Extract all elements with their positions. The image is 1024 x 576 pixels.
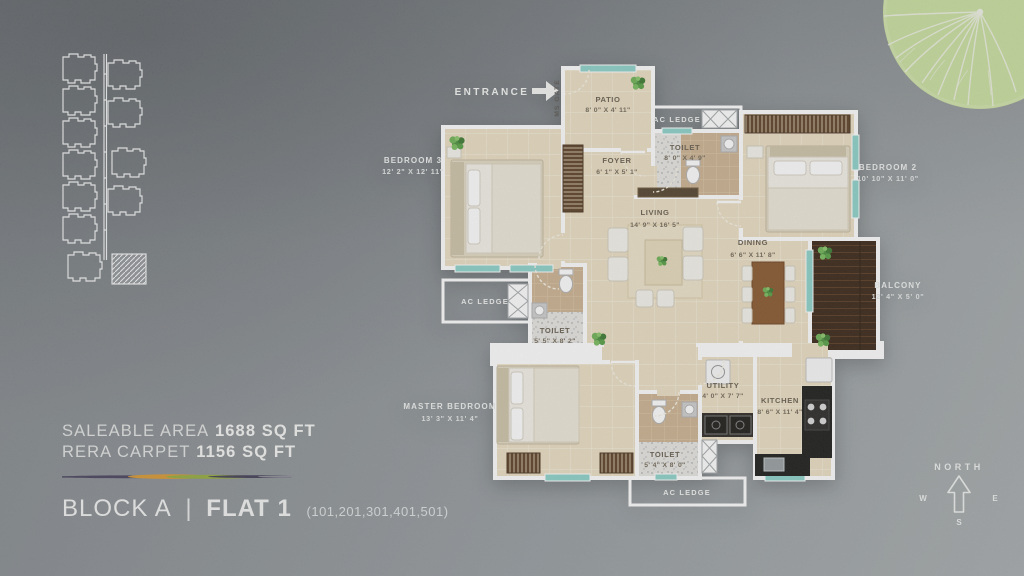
area-summary: SALEABLE AREA 1688 SQ FT RERA CARPET 115… (62, 421, 316, 463)
flat-name: FLAT 1 (206, 495, 292, 522)
dim-foyer: 6' 1" X 5' 1" (596, 169, 637, 176)
dim-patio: 8' 0" X 4' 11" (585, 107, 630, 114)
saleable-area-line: SALEABLE AREA 1688 SQ FT (62, 421, 316, 442)
label-kitchen: KITCHEN (761, 396, 799, 405)
label-ac-ledge-bottom: AC LEDGE (663, 488, 711, 497)
compass-south-label: S (956, 518, 962, 527)
label-toilet-top: TOILET (670, 143, 700, 152)
compass-arrow-icon (948, 476, 970, 512)
label-toilet-mid: TOILET (540, 326, 570, 335)
compass: NORTH W E S (903, 456, 1015, 534)
key-plan (60, 52, 160, 292)
title-separator: | (185, 495, 192, 522)
label-bedroom3: BEDROOM 3 (384, 156, 442, 165)
entrance-label: ENTRANCE (455, 87, 530, 98)
dim-bedroom2: 10' 10" X 11' 0" (857, 174, 919, 183)
label-patio: PATIO (595, 95, 620, 104)
label-toilet-bottom: TOILET (650, 450, 680, 459)
dim-dining: 6' 6" X 11' 8" (730, 252, 775, 259)
floor-plan: PATIO 8' 0" X 4' 11" FOYER 6' 1" X 5' 1"… (340, 50, 1024, 520)
rera-value: 1156 SQ FT (196, 443, 296, 461)
bed-bedroom3 (447, 147, 543, 257)
block-name: BLOCK A (62, 495, 172, 522)
dim-toilet-bottom: 5' 4" X 8' 0" (644, 462, 685, 469)
tv-console (638, 188, 698, 197)
label-living: LIVING (641, 208, 670, 217)
wardrobe-bedroom2 (745, 115, 850, 133)
wardrobe-foyer (563, 145, 583, 212)
key-plan-highlight-unit (112, 254, 146, 284)
compass-east-label: E (992, 494, 998, 503)
flat-title: BLOCK A | FLAT 1 (101,201,301,401,501) (62, 495, 449, 523)
balcony-slider (806, 250, 813, 312)
label-bedroom2: BEDROOM 2 (859, 163, 917, 172)
floor-plan-poster: PATIO 8' 0" X 4' 11" FOYER 6' 1" X 5' 1"… (0, 0, 1024, 576)
dim-utility: 4' 0" X 7' 7" (702, 393, 743, 400)
compass-west-label: W (919, 494, 927, 503)
dim-toilet-top: 8' 0" X 4' 9" (664, 155, 705, 162)
divider-ornament (62, 472, 292, 482)
saleable-label: SALEABLE AREA (62, 422, 209, 440)
saleable-value: 1688 SQ FT (215, 422, 316, 440)
kitchen-sink (764, 458, 784, 471)
rera-carpet-line: RERA CARPET 1156 SQ FT (62, 442, 316, 463)
label-balcony: BALCONY (874, 281, 921, 290)
label-utility: UTILITY (707, 381, 740, 390)
label-master-bedroom: MASTER BEDROOM (403, 402, 496, 411)
stove (805, 400, 829, 430)
dim-toilet-mid: 5' 5" X 8' 2" (534, 338, 575, 345)
bed-master (497, 366, 579, 444)
label-dining: DINING (738, 238, 768, 247)
label-ac-ledge-top: AC LEDGE (653, 115, 701, 124)
wardrobe-master-2 (600, 453, 633, 473)
dim-kitchen: 8' 6" X 11' 4" (757, 409, 802, 416)
dim-balcony: 12' 4" X 5' 0" (872, 292, 925, 301)
wardrobe-master-1 (507, 453, 540, 473)
dim-living: 14' 9" X 16' 5" (630, 222, 680, 229)
dim-master-bedroom: 13' 3" X 11' 4" (421, 414, 478, 423)
ms-gate-label: MS GATE (554, 79, 561, 116)
flat-units: (101,201,301,401,501) (307, 504, 449, 519)
dim-bedroom3: 12' 2" X 12' 11" (382, 167, 444, 176)
label-foyer: FOYER (602, 156, 631, 165)
compass-north-label: NORTH (934, 462, 984, 472)
rera-label: RERA CARPET (62, 443, 191, 461)
label-ac-ledge-left: AC LEDGE (461, 297, 509, 306)
